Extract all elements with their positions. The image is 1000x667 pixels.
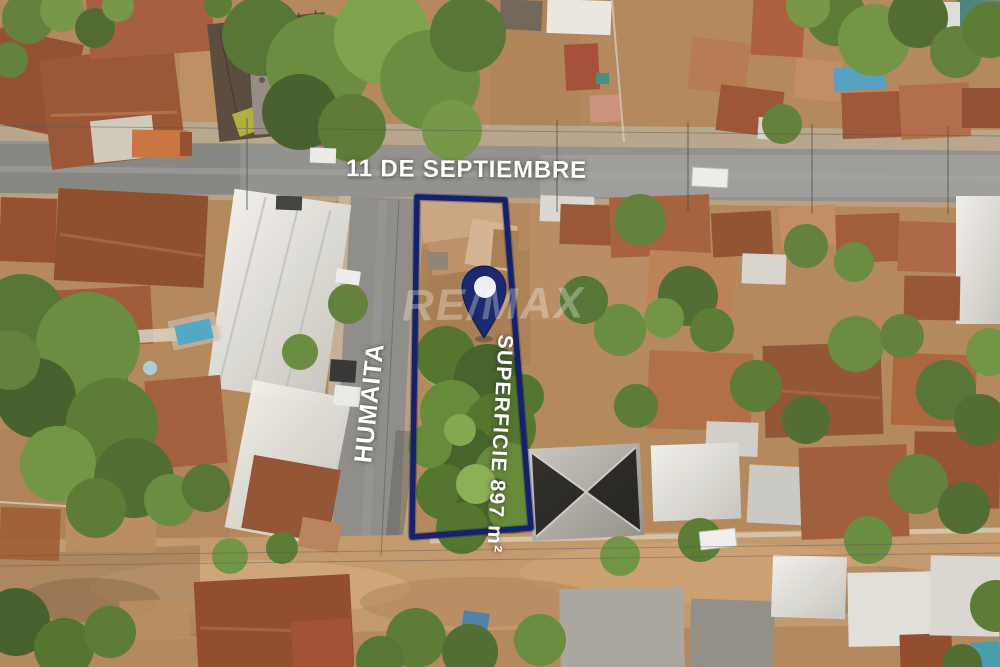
annotation-overlay [0,0,1000,667]
aerial-listing-photo: RE/MAX 11 DE SEPTIEMBRE HUMAITA SUPERFIC… [0,0,1000,667]
street-label-11-de-septiembre: 11 DE SEPTIEMBRE [346,155,587,185]
remax-watermark: RE/MAX [402,278,586,331]
